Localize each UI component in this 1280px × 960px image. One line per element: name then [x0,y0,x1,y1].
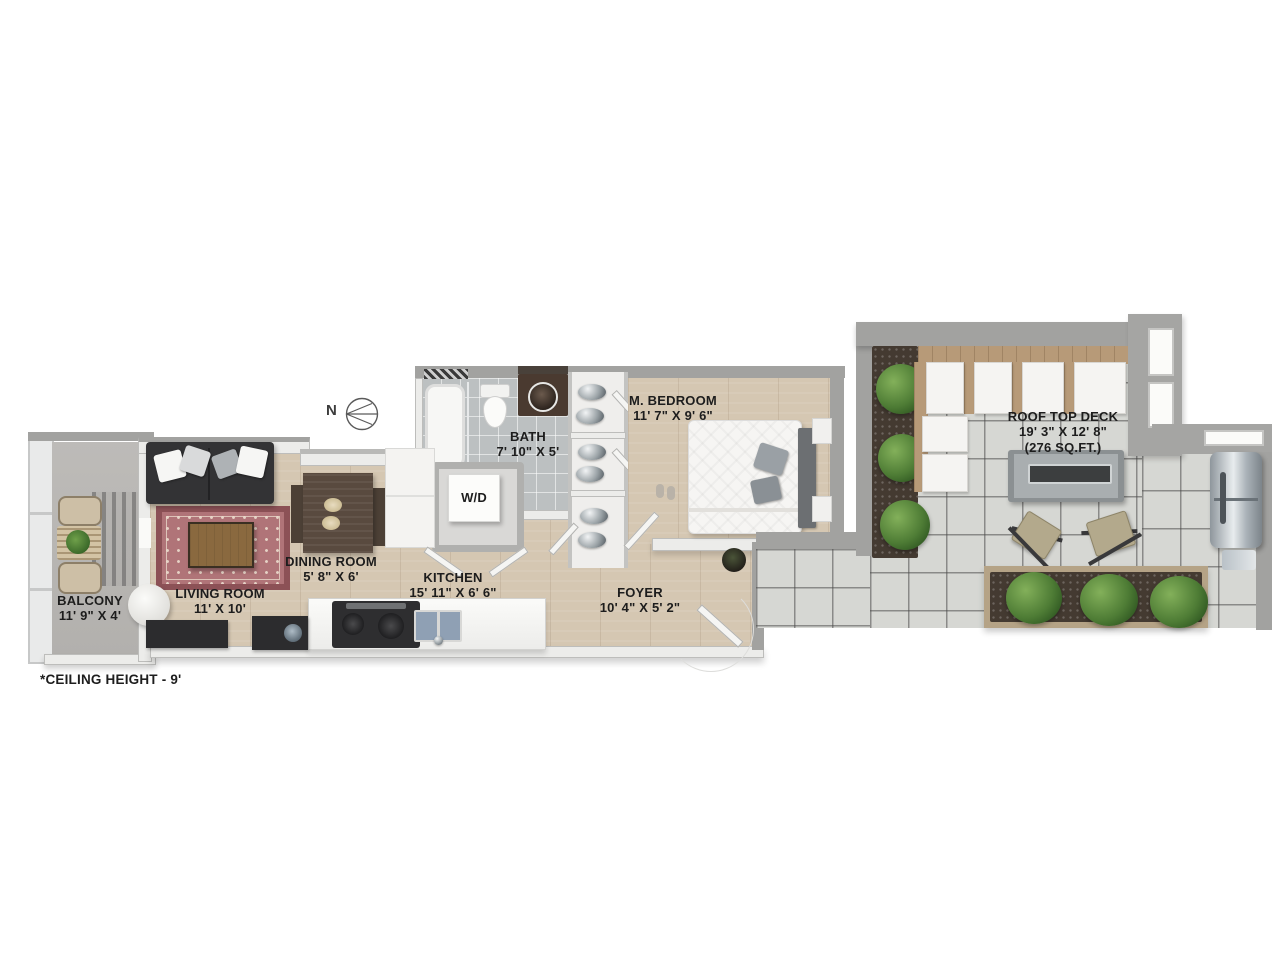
bath-window [424,369,468,379]
speaker-icon [284,624,302,642]
balcony-door-threshold [139,518,151,548]
sectional-cushion [1022,362,1064,414]
sectional-cushion [1074,362,1126,414]
kitchen-name: KITCHEN [383,570,523,585]
structure-window [1148,328,1174,376]
slippers [667,486,675,500]
coffee-table [188,522,254,568]
living-name: LIVING ROOM [160,586,280,601]
structure-window [1204,430,1264,446]
closet-divider [570,490,626,497]
grill-handle [1220,472,1226,524]
foyer-dims: 10' 4" X 5' 2" [570,600,710,615]
bed-blanket-fold [688,508,802,512]
living-room-label: LIVING ROOM 11' X 10' [160,586,280,617]
bed [688,420,802,534]
foyer-plant [722,548,746,572]
closet-shelf-item [578,532,606,548]
balcony-glass-railing [28,438,54,664]
corridor-tiles [756,549,876,628]
nightstand [812,496,832,522]
planter-bush [1150,576,1208,628]
closet-shelf-item [576,466,604,482]
dining-table [303,473,373,553]
cooktop-controls [346,603,406,609]
sectional-cushion [926,362,964,414]
cooktop [332,601,420,648]
railing-mullion [30,588,52,591]
ceiling-height-note: *CEILING HEIGHT - 9' [40,672,300,688]
kitchen-sink [414,610,462,642]
kitchen-label: KITCHEN 15' 11" X 6' 6" [383,570,523,601]
bath-label: BATH 7' 10" X 5' [468,429,588,460]
north-label: N [326,402,337,419]
block-top-wall [415,366,845,378]
living-dims: 11' X 10' [160,601,280,616]
floor-plan-canvas: W/D [0,0,1280,960]
bath-dims: 7' 10" X 5' [468,444,588,459]
burner [378,613,404,639]
foyer-label: FOYER 10' 4" X 5' 2" [570,585,710,616]
deck-area: (276 SQ.FT.) [983,440,1143,455]
dining-dims: 5' 8" X 6' [271,569,391,584]
slippers [656,484,664,498]
structure-window [1148,382,1174,428]
planter-bush [1080,574,1138,626]
balcony-label: BALCONY 11' 9" X 4' [30,593,150,624]
grill-side-shelf [1222,550,1256,570]
place-setting [322,516,340,530]
sink-faucet [434,636,443,645]
bedroom-right-wall [830,366,844,552]
planter-bush [1006,572,1062,624]
closet-shelf-item [580,508,608,524]
sectional-cushion [974,362,1012,414]
fire-table [1008,450,1124,502]
bedroom-label: M. BEDROOM 11' 7" X 9' 6" [603,393,743,424]
balcony-chair [58,562,102,594]
fridge-pantry [385,448,435,548]
dining-bench [373,488,385,546]
dining-room-label: DINING ROOM 5' 8" X 6' [271,554,391,585]
vanity-sink [528,382,558,412]
sofa-pillow [235,445,268,478]
kitchen-dims: 15' 11" X 6' 6" [383,585,523,600]
balcony-chair [58,496,102,526]
railing-mullion [30,512,52,515]
closet-shelf-item [576,408,604,424]
balcony-name: BALCONY [30,593,150,608]
fire-table-burner [1028,464,1112,484]
vanity-mirror [518,366,568,374]
north-arrow-icon [342,394,382,434]
deck-dims: 19' 3" X 12' 8" [983,424,1143,439]
planter-bush [880,500,930,550]
fridge-panel-line [386,495,434,497]
sectional-cushion [922,454,968,492]
closet-shelf-item [578,384,606,400]
balcony-top-wall [28,432,154,441]
sectional-arm [964,362,974,414]
north-arrow: N [326,394,382,434]
bbq-grill [1210,452,1262,548]
bedroom-dims: 11' 7" X 9' 6" [603,408,743,423]
roof-deck-label: ROOF TOP DECK 19' 3" X 12' 8" (276 SQ.FT… [983,409,1143,455]
media-cabinet [252,616,308,650]
sectional-arm [1064,362,1074,414]
balcony-dims: 11' 9" X 4' [30,608,150,623]
tv-console [146,620,228,648]
deck-name: ROOF TOP DECK [983,409,1143,424]
sectional-arm [1012,362,1022,414]
dining-name: DINING ROOM [271,554,391,569]
deck-left-wall [856,330,872,556]
laundry-label: W/D [448,490,500,505]
deck-top-wall [856,322,1142,346]
sectional-cushion [922,416,968,452]
potted-plant [66,530,90,554]
burner [342,613,364,635]
dining-bench [291,485,303,543]
bedroom-name: M. BEDROOM [603,393,743,408]
bath-name: BATH [468,429,588,444]
foyer-name: FOYER [570,585,710,600]
place-setting [324,498,342,512]
nightstand [812,418,832,444]
